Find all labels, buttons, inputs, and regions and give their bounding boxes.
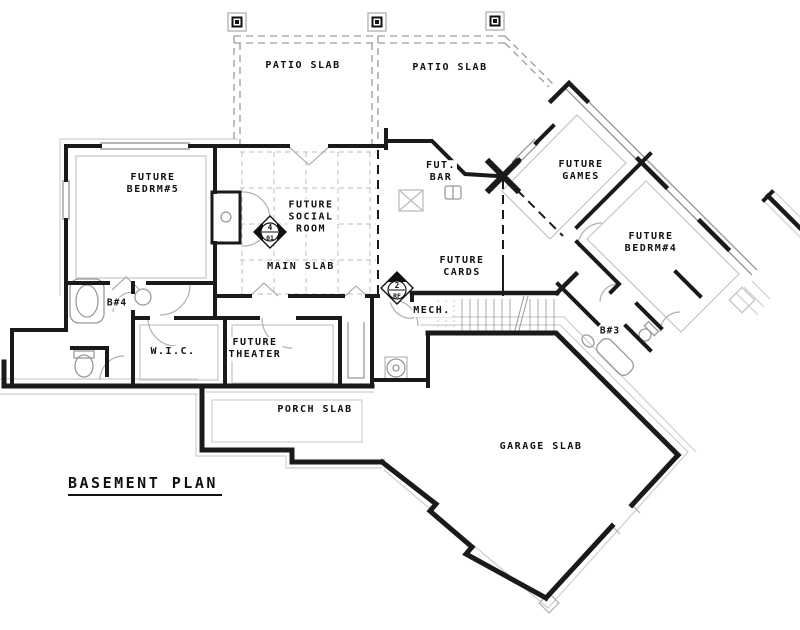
- label-b4: B#4: [106, 297, 128, 308]
- marker-bottom-label: 01: [266, 234, 274, 242]
- marker-top-label: 4: [268, 223, 273, 232]
- marker-top-label: 2: [395, 281, 400, 290]
- marker-bottom-label: RF: [393, 292, 401, 300]
- floor-plan-drawing: 4 01 2 RF: [0, 0, 800, 630]
- label-fut-bar: FUT. BAR: [425, 160, 457, 184]
- label-patio-slab-1: PATIO SLAB: [264, 60, 341, 72]
- footing-outlines: [0, 89, 800, 608]
- label-garage-slab: GARAGE SLAB: [499, 441, 584, 453]
- stairs: [438, 296, 554, 334]
- walls: [12, 83, 800, 386]
- detail-marker-social: 4 01: [254, 216, 286, 248]
- label-porch-slab: PORCH SLAB: [276, 404, 353, 416]
- label-patio-slab-2: PATIO SLAB: [411, 62, 488, 74]
- plan-title: BASEMENT PLAN: [68, 474, 222, 496]
- patio-posts: [228, 12, 504, 31]
- label-future-games: FUTURE GAMES: [557, 159, 604, 183]
- label-future-social-room: FUTURE SOCIAL ROOM: [287, 199, 334, 234]
- detail-marker-mech: 2 RF: [381, 272, 414, 318]
- label-b3: B#3: [599, 325, 621, 336]
- label-future-bedrm5: FUTURE BEDRM#5: [126, 172, 181, 196]
- label-main-slab: MAIN SLAB: [266, 261, 336, 273]
- label-future-cards: FUTURE CARDS: [438, 255, 485, 279]
- label-wic: W.I.C.: [149, 346, 196, 358]
- label-future-theater: FUTURE THEATER: [228, 337, 283, 361]
- label-mech: MECH.: [412, 305, 452, 317]
- basement-floor-plan: 4 01 2 RF PATIO SLAB PATIO SLAB FUTURE B…: [0, 0, 800, 630]
- patio-outline: [234, 36, 553, 144]
- label-future-bedrm4: FUTURE BEDRM#4: [624, 231, 679, 255]
